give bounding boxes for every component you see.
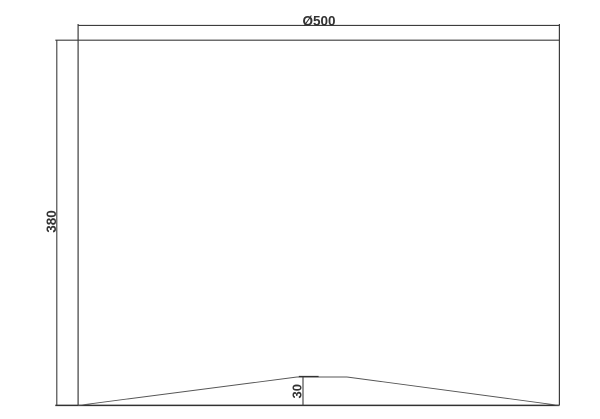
svg-text:380: 380 xyxy=(44,210,59,233)
svg-text:Ø500: Ø500 xyxy=(302,13,335,28)
svg-text:30: 30 xyxy=(289,384,304,398)
